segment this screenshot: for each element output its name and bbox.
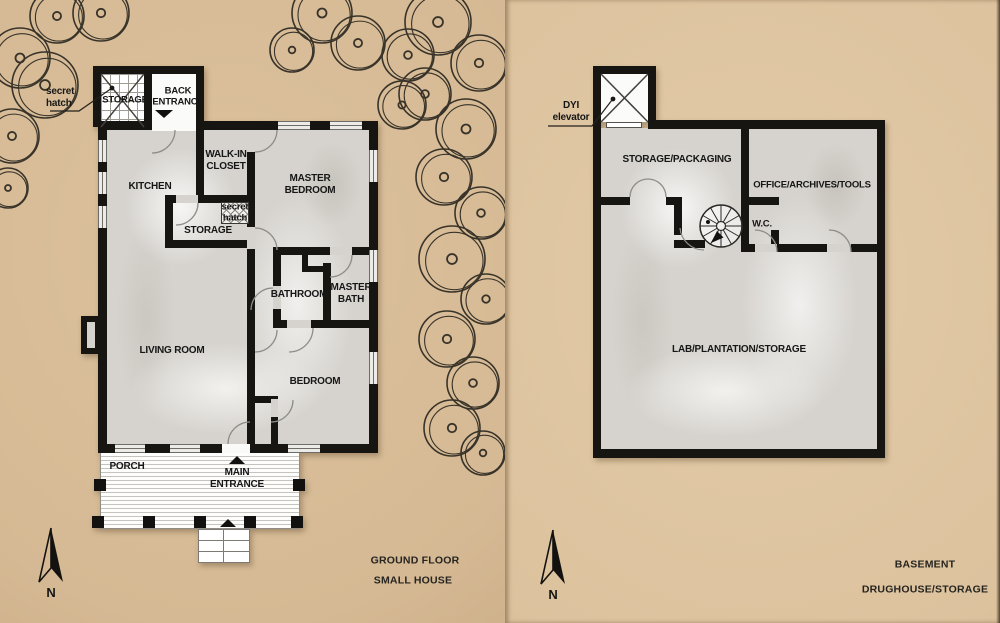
storage-mid-label: STORAGE [184,225,232,237]
linework-layer-right [505,0,1000,623]
main-entrance-label: MAIN ENTRANCE [204,467,270,491]
north-arrow-icon [39,528,63,582]
wc-label: W.C. [752,218,772,229]
kitchen-label: KITCHEN [128,181,171,193]
basement-plan: DYI elevator STORAGE/PACKAGING OFFICE/AR… [505,0,1000,623]
porch-label: PORCH [109,461,144,473]
sheet-edge-shadow [996,0,1000,623]
plan-caption-line2: SMALL HOUSE [374,575,452,588]
master-bedroom-label: MASTER BEDROOM [274,173,346,197]
living-room-label: LIVING ROOM [139,345,204,357]
dyi-elevator-label: DYI elevator [549,100,593,124]
basement-caption-line1: BASEMENT [895,559,956,572]
bedroom-label: BEDROOM [290,376,341,388]
floor-plan-sheet: secret hatch STORAGE BACK ENTRANCE KITCH… [0,0,1000,623]
walk-in-closet-label: WALK-IN CLOSET [195,149,257,173]
lab-plantation-storage-label: LAB/PLANTATION/STORAGE [672,344,806,356]
master-bath-label: MASTER BATH [324,282,378,306]
plan-caption-line1: GROUND FLOOR [371,555,460,568]
back-entrance-label: BACK ENTRANCE [149,86,207,109]
north-label-right: N [548,587,557,603]
spiral-staircase-icon [700,205,742,247]
office-archives-tools-label: OFFICE/ARCHIVES/TOOLS [753,179,871,190]
secret-hatch-label-top: secret hatch [46,86,84,110]
basement-caption-line2: DRUGHOUSE/STORAGE [862,584,988,597]
north-arrow-icon-right [541,530,565,584]
storage-packaging-label: STORAGE/PACKAGING [622,154,731,166]
bathroom-label: BATHROOM [271,289,328,301]
secret-hatch-label-mid: secret hatch [216,202,254,225]
elevator-cross-icon [601,74,648,122]
north-label: N [46,585,55,601]
ground-floor-plan: secret hatch STORAGE BACK ENTRANCE KITCH… [0,0,505,623]
storage-annex-label: STORAGE [102,94,147,105]
